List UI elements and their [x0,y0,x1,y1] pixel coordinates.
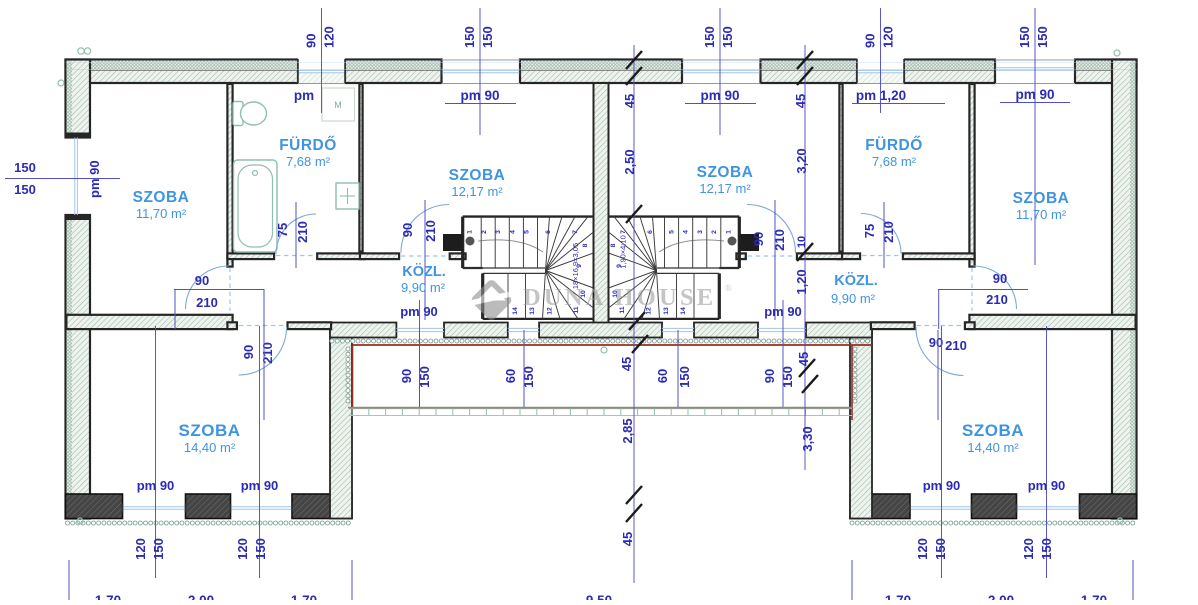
svg-text:120: 120 [881,26,896,48]
svg-text:9,50: 9,50 [586,593,612,600]
svg-text:pm: pm [294,88,314,103]
svg-text:pm 90: pm 90 [460,88,499,103]
svg-text:18×16,9=3,05: 18×16,9=3,05 [571,243,580,289]
svg-text:14: 14 [512,307,519,315]
svg-text:10: 10 [796,236,808,248]
svg-text:2: 2 [481,230,488,234]
svg-text:2: 2 [711,230,718,234]
svg-text:4: 4 [510,230,517,234]
svg-text:9,90 m²: 9,90 m² [401,280,446,295]
svg-text:1,70: 1,70 [885,593,911,600]
svg-text:150: 150 [1035,26,1050,48]
svg-text:14,40 m²: 14,40 m² [967,440,1019,455]
svg-text:150: 150 [677,366,692,388]
svg-text:90: 90 [751,232,766,246]
svg-text:4: 4 [683,230,690,234]
svg-text:120: 120 [235,538,250,560]
svg-text:150: 150 [933,538,948,560]
svg-text:9,90 m²: 9,90 m² [831,291,876,306]
svg-text:45: 45 [620,532,635,546]
svg-text:150: 150 [14,182,36,197]
svg-text:pm 90: pm 90 [87,160,102,198]
svg-text:pm 90: pm 90 [700,88,739,103]
svg-text:M: M [334,100,342,110]
svg-text:210: 210 [295,221,310,243]
svg-text:pm 90: pm 90 [1015,87,1054,102]
svg-text:120: 120 [915,538,930,560]
svg-text:150: 150 [1017,26,1032,48]
svg-text:®: ® [725,283,732,293]
svg-text:pm 1,20: pm 1,20 [856,88,906,103]
svg-text:12,17 m²: 12,17 m² [451,184,503,199]
svg-text:75: 75 [862,224,877,238]
svg-text:150: 150 [480,26,495,48]
svg-text:5: 5 [524,230,531,234]
svg-text:SZOBA: SZOBA [449,167,506,184]
svg-text:8: 8 [610,243,617,247]
svg-text:3: 3 [697,230,704,234]
svg-text:210: 210 [881,221,896,243]
svg-text:11,70 m²: 11,70 m² [1016,207,1067,222]
svg-text:90: 90 [304,34,319,48]
svg-text:210: 210 [196,295,218,310]
svg-text:6: 6 [647,230,654,234]
svg-text:SZOBA: SZOBA [1013,190,1070,207]
svg-text:90: 90 [195,273,209,288]
svg-text:210: 210 [260,342,275,364]
svg-text:pm 90: pm 90 [137,478,175,493]
svg-text:SZOBA: SZOBA [962,421,1024,440]
svg-text:KÖZL.: KÖZL. [834,272,878,289]
svg-text:90: 90 [399,369,414,383]
svg-text:pm 90: pm 90 [241,478,279,493]
svg-text:150: 150 [702,26,717,48]
svg-text:2,00: 2,00 [988,593,1014,600]
svg-text:5: 5 [669,230,676,234]
svg-text:DUNA HOUSE: DUNA HOUSE [523,284,716,311]
svg-text:FÜRDŐ: FÜRDŐ [279,136,337,154]
svg-text:1,70: 1,70 [1081,593,1107,600]
svg-text:1,70: 1,70 [95,593,121,600]
svg-text:7: 7 [620,230,627,234]
svg-text:3: 3 [495,230,502,234]
svg-text:150: 150 [780,366,795,388]
svg-text:90: 90 [400,223,415,237]
svg-text:75: 75 [275,223,290,237]
svg-text:90: 90 [863,34,878,48]
svg-text:2,85: 2,85 [620,418,635,443]
svg-text:90: 90 [762,369,777,383]
svg-text:3,20: 3,20 [794,148,809,173]
svg-text:SZOBA: SZOBA [697,164,754,181]
svg-text:SZOBA: SZOBA [133,189,190,206]
svg-text:1,20: 1,20 [794,269,809,294]
svg-text:2,00: 2,00 [188,593,214,600]
svg-text:KÖZL.: KÖZL. [402,263,446,280]
svg-text:7,68 m²: 7,68 m² [286,154,331,169]
svg-text:12,17 m²: 12,17 m² [699,181,751,196]
svg-text:120: 120 [1021,538,1036,560]
svg-text:FÜRDŐ: FÜRDŐ [865,136,923,154]
svg-text:45: 45 [796,352,811,366]
svg-text:1: 1 [467,230,474,234]
svg-text:210: 210 [945,338,967,353]
svg-text:11,70 m²: 11,70 m² [136,206,187,221]
svg-text:150: 150 [720,26,735,48]
svg-text:150: 150 [1039,538,1054,560]
svg-text:150: 150 [151,538,166,560]
svg-text:1,70: 1,70 [291,593,317,600]
svg-text:120: 120 [322,26,337,48]
svg-text:1,90×4:10: 1,90×4:10 [619,235,628,269]
svg-text:45: 45 [793,94,808,108]
svg-text:pm 90: pm 90 [1028,478,1066,493]
svg-text:150: 150 [462,26,477,48]
svg-text:90: 90 [241,345,256,359]
svg-text:8: 8 [582,243,589,247]
svg-text:90: 90 [993,271,1007,286]
svg-text:60: 60 [655,369,670,383]
svg-text:210: 210 [772,229,787,251]
svg-text:pm 90: pm 90 [400,304,438,319]
svg-text:150: 150 [253,538,268,560]
svg-text:SZOBA: SZOBA [179,421,241,440]
svg-text:150: 150 [14,160,36,175]
svg-text:6: 6 [545,230,552,234]
svg-text:120: 120 [133,538,148,560]
svg-text:3,30: 3,30 [800,426,815,451]
svg-text:45: 45 [622,94,637,108]
svg-text:150: 150 [521,366,536,388]
svg-text:14,40 m²: 14,40 m² [184,440,236,455]
svg-text:60: 60 [503,369,518,383]
svg-text:pm 90: pm 90 [923,478,961,493]
svg-text:7,68 m²: 7,68 m² [872,154,917,169]
svg-text:2,50: 2,50 [622,149,637,174]
svg-text:45: 45 [619,357,634,371]
svg-text:7: 7 [572,230,579,234]
svg-text:210: 210 [986,292,1008,307]
svg-text:1: 1 [726,230,733,234]
